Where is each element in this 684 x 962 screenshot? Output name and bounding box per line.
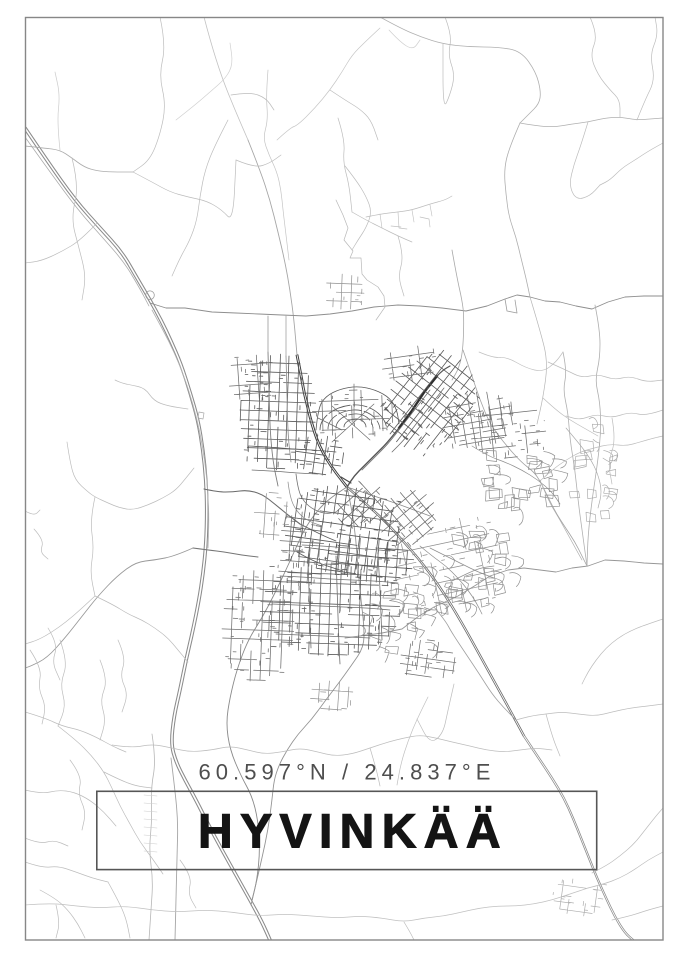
svg-text:60.597°N / 24.837°E: 60.597°N / 24.837°E bbox=[198, 760, 495, 785]
svg-text:HYVINKÄÄ: HYVINKÄÄ bbox=[198, 805, 508, 858]
